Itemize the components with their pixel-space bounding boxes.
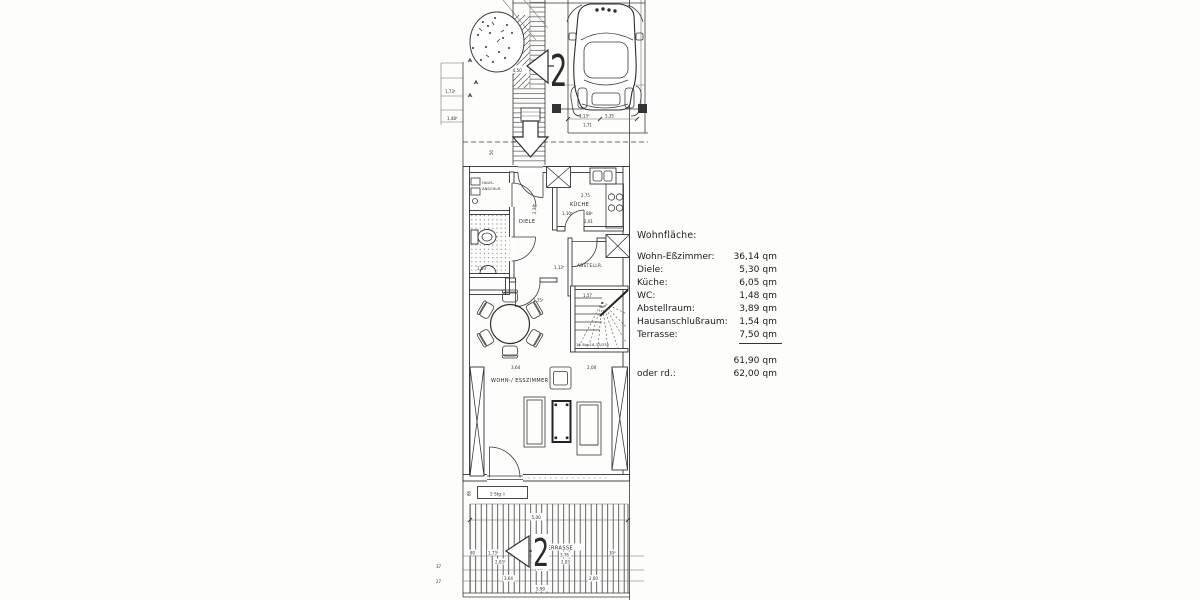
- dim-t-r4b: 2,00: [589, 576, 598, 581]
- car-symbol: [567, 4, 643, 116]
- area-row-terrasse: Terrasse: 7,50 qm: [637, 329, 777, 344]
- area-row-value: 3,89 qm: [739, 303, 777, 316]
- step-note: 2 Stg ⇧: [490, 492, 506, 497]
- area-table: Wohnfläche: Wohn-Eßzimmer: 36,14 qm Diel…: [637, 230, 777, 381]
- floor-plan-drawing: 1,73⁵ 1,48⁵ 1,13⁵ 5,35 1,71 4,50 50 2: [430, 0, 670, 600]
- room-label-diele: DIELE: [519, 219, 535, 225]
- area-row-value: 1,54 qm: [739, 316, 777, 329]
- area-rounded-label: oder rd.:: [637, 368, 676, 381]
- room-label-hausanschluss-1: HAUS-: [482, 181, 495, 185]
- dim-hall-a: 1,12⁵: [554, 265, 565, 270]
- dim-garage-2: 5,35: [605, 114, 614, 119]
- area-row-value: 5,30 qm: [739, 264, 777, 277]
- sideboard: [524, 397, 545, 447]
- window-right-living: [612, 367, 628, 470]
- staircase: 16 Stg 18,33/250 1,57: [575, 290, 628, 348]
- area-row-abstellraum: Abstellraum: 3,89 qm: [637, 303, 777, 316]
- dim-table: 1,75⁵: [533, 298, 544, 303]
- area-row-label: Wohn-Eßzimmer:: [637, 251, 715, 264]
- room-label-hausanschluss-2: ANSCHLR.: [482, 187, 501, 191]
- area-row-value: 36,14 qm: [733, 251, 777, 264]
- coffee-table: [553, 401, 571, 442]
- dim-left-2: 1,48⁵: [447, 116, 458, 121]
- house-walls: [463, 167, 630, 482]
- area-row-subtotal: 61,90 qm: [637, 355, 777, 368]
- area-row-label: Terrasse:: [637, 329, 678, 344]
- area-row-wohn-esszimmer: Wohn-Eßzimmer: 36,14 qm: [637, 251, 777, 264]
- area-table-heading: Wohnfläche:: [637, 230, 777, 241]
- area-row-value: 6,05 qm: [739, 277, 777, 290]
- dim-kitchen-c: 2,01: [584, 219, 593, 224]
- dim-terrace-top: 5,00: [532, 515, 542, 520]
- dim-kitchen-a: 1,10⁵: [562, 211, 573, 216]
- terrace-steps: 2 Stg ⇧ 86: [467, 487, 528, 499]
- room-kueche: KÜCHE 2,75 1,10⁵ 88⁵ 2,01: [547, 167, 624, 229]
- dim-kitchen-b: 88⁵: [586, 211, 593, 216]
- room-diele: DIELE 2,38⁵: [519, 203, 537, 225]
- area-row-label: Diele:: [637, 264, 663, 277]
- dim-t-r4a: 3,64: [504, 576, 513, 581]
- sofa: [577, 402, 601, 455]
- room-label-wohn-esszimmer: WOHN-/ ESSZIMMER: [491, 378, 549, 384]
- floorplan-page: { "area_table": { "heading": "Wohnfläche…: [0, 0, 1200, 600]
- dim-stair-w: 1,57: [583, 293, 592, 298]
- terrace: 2 Stg ⇧ 86 5,00 80 1,73⁵ 3,76 30⁵ 2,03⁵ …: [436, 487, 644, 598]
- area-row-rounded: oder rd.: 62,00 qm: [637, 368, 777, 381]
- dim-t-r2b: 2,03: [561, 560, 570, 565]
- dim-edge-a: 37: [436, 564, 442, 569]
- dim-t-total: 5,99: [536, 587, 545, 592]
- window-left-living: [470, 367, 484, 476]
- dim-t-r1c: 3,76: [560, 553, 569, 558]
- house-number-terrace: 2: [533, 531, 549, 576]
- dim-entry-small: 50: [489, 149, 494, 155]
- area-rounded-value: 62,00 qm: [733, 368, 777, 381]
- dim-t-r1a: 80: [470, 551, 476, 556]
- dim-living-b: 2,00: [587, 365, 597, 370]
- room-label-kueche: KÜCHE: [570, 201, 589, 208]
- house-number-top: 2: [550, 45, 567, 97]
- armchair: [550, 367, 571, 389]
- dim-living-a: 3,64: [511, 365, 521, 370]
- dim-edge-b: 27: [436, 579, 442, 584]
- dim-step: 86: [467, 490, 472, 496]
- dim-garage-3: 1,71: [583, 123, 592, 128]
- area-row-hausanschlussraum: Hausanschlußraum: 1,54 qm: [637, 316, 777, 329]
- room-label-abstellraum: ABSTELLR.: [577, 263, 603, 269]
- dim-t-r2a: 2,03⁵: [495, 560, 506, 565]
- table-spacer: [637, 344, 777, 353]
- dim-diele: 2,38⁵: [532, 203, 537, 214]
- area-row-wc: WC: 1,48 qm: [637, 290, 777, 303]
- dining-table: 1,75⁵: [477, 290, 544, 358]
- area-row-label: Hausanschlußraum:: [637, 316, 728, 329]
- dim-entry: 4,50: [513, 68, 523, 73]
- stair-note: 16 Stg 18,33/250: [576, 343, 610, 347]
- room-hausanschluss: HAUS- ANSCHLR.: [471, 178, 501, 204]
- area-row-kueche: Küche: 6,05 qm: [637, 277, 777, 290]
- dim-left-1: 1,73⁵: [445, 89, 456, 94]
- room-wc: 1,63: [470, 215, 510, 274]
- dim-t-r1d: 30⁵: [609, 551, 616, 556]
- area-row-label: Abstellraum:: [637, 303, 695, 316]
- area-total-value: 61,90 qm: [733, 355, 777, 368]
- window-right-upper: [606, 235, 630, 258]
- area-row-label: Küche:: [637, 277, 668, 290]
- area-row-value: 7,50 qm: [739, 329, 782, 344]
- dim-kitchen-w: 2,75: [581, 193, 590, 198]
- dim-wc-w: 1,63: [477, 266, 486, 271]
- area-row-diele: Diele: 5,30 qm: [637, 264, 777, 277]
- area-row-label: WC:: [637, 290, 655, 303]
- room-wohnzimmer: WOHN-/ ESSZIMMER 3,64 2,00 4,79: [470, 365, 628, 476]
- area-row-value: 1,48 qm: [739, 290, 777, 303]
- dim-t-r1b: 1,73⁵: [488, 551, 499, 556]
- left-dimension-chain: 1,73⁵ 1,48⁵: [441, 63, 463, 125]
